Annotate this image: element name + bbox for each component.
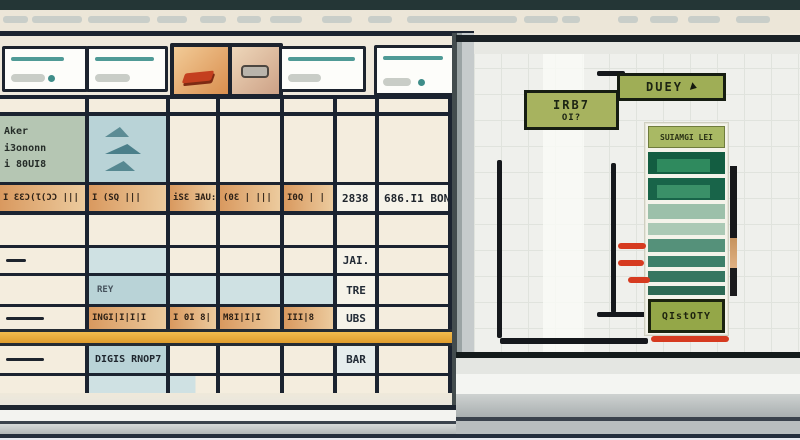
cell[interactable] [379,346,448,373]
left-window-bottom-strip [0,410,456,421]
panel-base [456,394,800,417]
eraser-icon [182,71,215,84]
menu-item-dash[interactable] [562,16,580,23]
cell[interactable]: REY [89,276,166,304]
barcode-cell[interactable]: (0Ɛ | ||| [220,185,280,211]
irb7-button-label: IRB7 [553,98,590,112]
cell[interactable] [220,346,280,373]
cell-dash [6,317,44,320]
text-line-icon [288,57,354,61]
menu-divider [0,31,474,36]
cell-dash [6,358,44,361]
series-bar [648,256,725,267]
cell[interactable] [337,116,375,182]
text-line-icon [383,56,442,60]
label-cell[interactable]: BAR [337,346,375,373]
cell[interactable] [220,276,280,304]
toolbar-card-eraser[interactable] [170,43,232,98]
cell[interactable] [0,307,85,329]
menu-item-dash[interactable] [618,16,638,23]
cell[interactable] [337,215,375,245]
value-cell[interactable]: 2838 [337,185,375,211]
cell[interactable] [170,116,216,182]
irb7-button[interactable]: IRB7 OI? [524,90,619,130]
cell[interactable] [284,346,333,373]
cell[interactable] [0,99,85,112]
toolbar-card-4[interactable] [374,45,458,96]
barcode-cell[interactable]: iSƐ ƎAU: [170,185,216,211]
barcode-cell[interactable]: I (SQ ||| [89,185,166,211]
panel-header-strip [474,42,800,54]
cell[interactable] [0,376,85,393]
title-bar [0,0,800,10]
info-cell[interactable]: Aker i3ononn i 80UI8 [0,116,85,182]
cell[interactable] [284,248,333,273]
cell[interactable] [379,116,448,182]
label-cell[interactable]: UBS [337,307,375,329]
series-bar-inner [657,185,709,198]
menu-item-dash[interactable] [688,16,720,23]
menu-item-dash[interactable] [157,16,187,23]
barcode-cell[interactable]: III|8 [284,307,333,329]
pencil-wood [730,238,737,268]
series-bar [648,286,725,295]
panel-base [456,421,800,434]
cell[interactable] [89,376,166,393]
cell[interactable] [170,346,216,373]
menu-item-dash[interactable] [32,16,82,23]
panel-top-border [456,35,800,42]
bars-holder [648,152,725,295]
chart-cell[interactable] [89,116,166,182]
menu-item-dash[interactable] [368,16,392,23]
series-bar [648,223,725,235]
series-bar-list: SUIAMGI LEI QIstOTY [644,122,729,336]
cell[interactable] [220,248,280,273]
cell[interactable] [284,276,333,304]
cell[interactable] [379,99,448,112]
toolbar-card-2[interactable] [86,46,168,92]
highlight-divider-bar [0,329,452,346]
cell[interactable] [379,248,448,273]
menu-item-dash[interactable] [407,16,517,23]
text-line-icon [95,57,154,61]
cell[interactable] [379,215,448,245]
table-row: INGI|I|I|I I 0I 8| M8I|I|I III|8 UBS [0,307,452,329]
list-header: SUIAMGI LEI [648,126,725,148]
label-cell[interactable]: TRE [337,276,375,304]
series-bar [648,239,725,252]
menu-item-dash[interactable] [524,16,558,23]
cell-dash [6,259,26,262]
cell[interactable] [220,376,280,393]
cell[interactable] [220,116,280,182]
cell[interactable] [170,276,216,304]
series-bar [648,152,725,174]
menu-item-dash[interactable] [200,16,226,23]
cell[interactable] [170,376,216,393]
cell[interactable] [0,276,85,304]
cell[interactable] [170,99,216,112]
triangle-icon [105,144,141,154]
series-bar [648,204,725,219]
table-row: Aker i3ononn i 80UI8 [0,116,452,182]
table-row: JAI. [0,248,452,273]
menu-item-dash[interactable] [237,16,261,23]
pill-icon [11,74,45,82]
cursor-icon [690,82,698,91]
panel-bottom-strip [456,374,800,394]
cell[interactable] [379,276,448,304]
info-line: Aker [4,124,28,141]
value-cell[interactable]: 686.I1 BONI [379,185,448,211]
cell[interactable] [220,99,280,112]
pencil-tip [730,268,737,296]
cell[interactable] [379,376,448,393]
irb7-button-sublabel: OI? [562,113,581,123]
duey-button[interactable]: DUEY [617,73,726,101]
cell[interactable] [170,248,216,273]
toolbar-card-1[interactable] [2,46,88,92]
spreadsheet: Aker i3ononn i 80UI8 I ƐƐƆ(Ɩ(ƆƆ ||| I (S… [0,95,452,408]
barcode-header-row: I ƐƐƆ(Ɩ(ƆƆ ||| I (SQ ||| iSƐ ƎAU: (0Ɛ | … [0,185,452,211]
label-cell[interactable]: JAI. [337,248,375,273]
text-line-icon [11,57,64,61]
barcode-cell[interactable]: M8I|I|I [220,307,280,329]
chart-axis-vertical [611,163,616,313]
panel-bottom-strip [456,358,800,374]
chart-axis-vertical [497,160,502,338]
cell[interactable] [337,99,375,112]
toolbar-card-battery[interactable] [228,43,283,98]
app-window: Aker i3ononn i 80UI8 I ƐƐƆ(Ɩ(ƆƆ ||| I (S… [0,0,800,440]
red-annotation-mark [651,336,729,342]
triangle-icon [105,127,129,137]
menu-item-dash[interactable] [3,16,28,23]
pencil-shaft [730,166,737,238]
menu-bar [0,10,800,33]
triangle-icon [105,161,135,171]
info-line: i3ononn [4,141,46,158]
custom-button[interactable]: QIstOTY [648,299,725,333]
chart-axis-horizontal [597,312,649,317]
menu-item-dash[interactable] [270,16,302,23]
cell[interactable] [89,215,166,245]
teal-dot-icon [418,79,425,86]
menu-item-dash[interactable] [88,16,150,23]
menu-item-dash[interactable] [650,16,678,23]
cell[interactable] [284,215,333,245]
note-cell[interactable]: DIGIS RNOP7 [89,346,166,373]
cell[interactable] [89,99,166,112]
red-annotation-mark [628,277,650,283]
chart-panel: DUEY IRB7 OI? SUIAMGI LEI QIstOTY [474,42,800,352]
table-row [0,376,452,393]
chart-axis-horizontal [500,338,648,344]
barcode-cell[interactable]: I0Q | | [284,185,333,211]
info-line: i 80UI8 [4,157,46,174]
cell[interactable] [284,99,333,112]
cell[interactable] [379,307,448,329]
battery-icon [241,65,269,78]
red-annotation-mark [618,243,646,249]
series-bar [648,178,725,200]
table-row [0,215,452,245]
menu-item-dash[interactable] [322,16,352,23]
series-bar [648,271,725,282]
series-bar-inner [657,159,709,172]
teal-dot-icon [48,75,55,82]
table-row: DIGIS RNOP7 BAR [0,346,452,373]
table-row: REY TRE [0,276,452,304]
pill-icon [383,78,411,86]
cell[interactable] [337,376,375,393]
red-annotation-mark [618,260,644,266]
cell[interactable] [89,248,166,273]
cell[interactable] [0,215,85,245]
menu-item-dash[interactable] [736,16,770,23]
pill-icon [95,74,130,82]
pencil-icon [730,166,737,296]
duey-button-label: DUEY [646,80,683,94]
barcode-cell[interactable]: I 0I 8| [170,307,216,329]
toolbar-card-3[interactable] [279,46,366,92]
pill-icon [288,74,320,82]
cell[interactable] [284,376,333,393]
cell[interactable] [220,215,280,245]
barcode-cell[interactable]: I ƐƐƆ(Ɩ(ƆƆ ||| [0,185,85,211]
barcode-cell[interactable]: INGI|I|I|I [89,307,166,329]
cell[interactable] [0,248,85,273]
formula-strip [0,99,452,112]
cell[interactable] [170,215,216,245]
cell[interactable] [284,116,333,182]
cell[interactable] [0,346,85,373]
